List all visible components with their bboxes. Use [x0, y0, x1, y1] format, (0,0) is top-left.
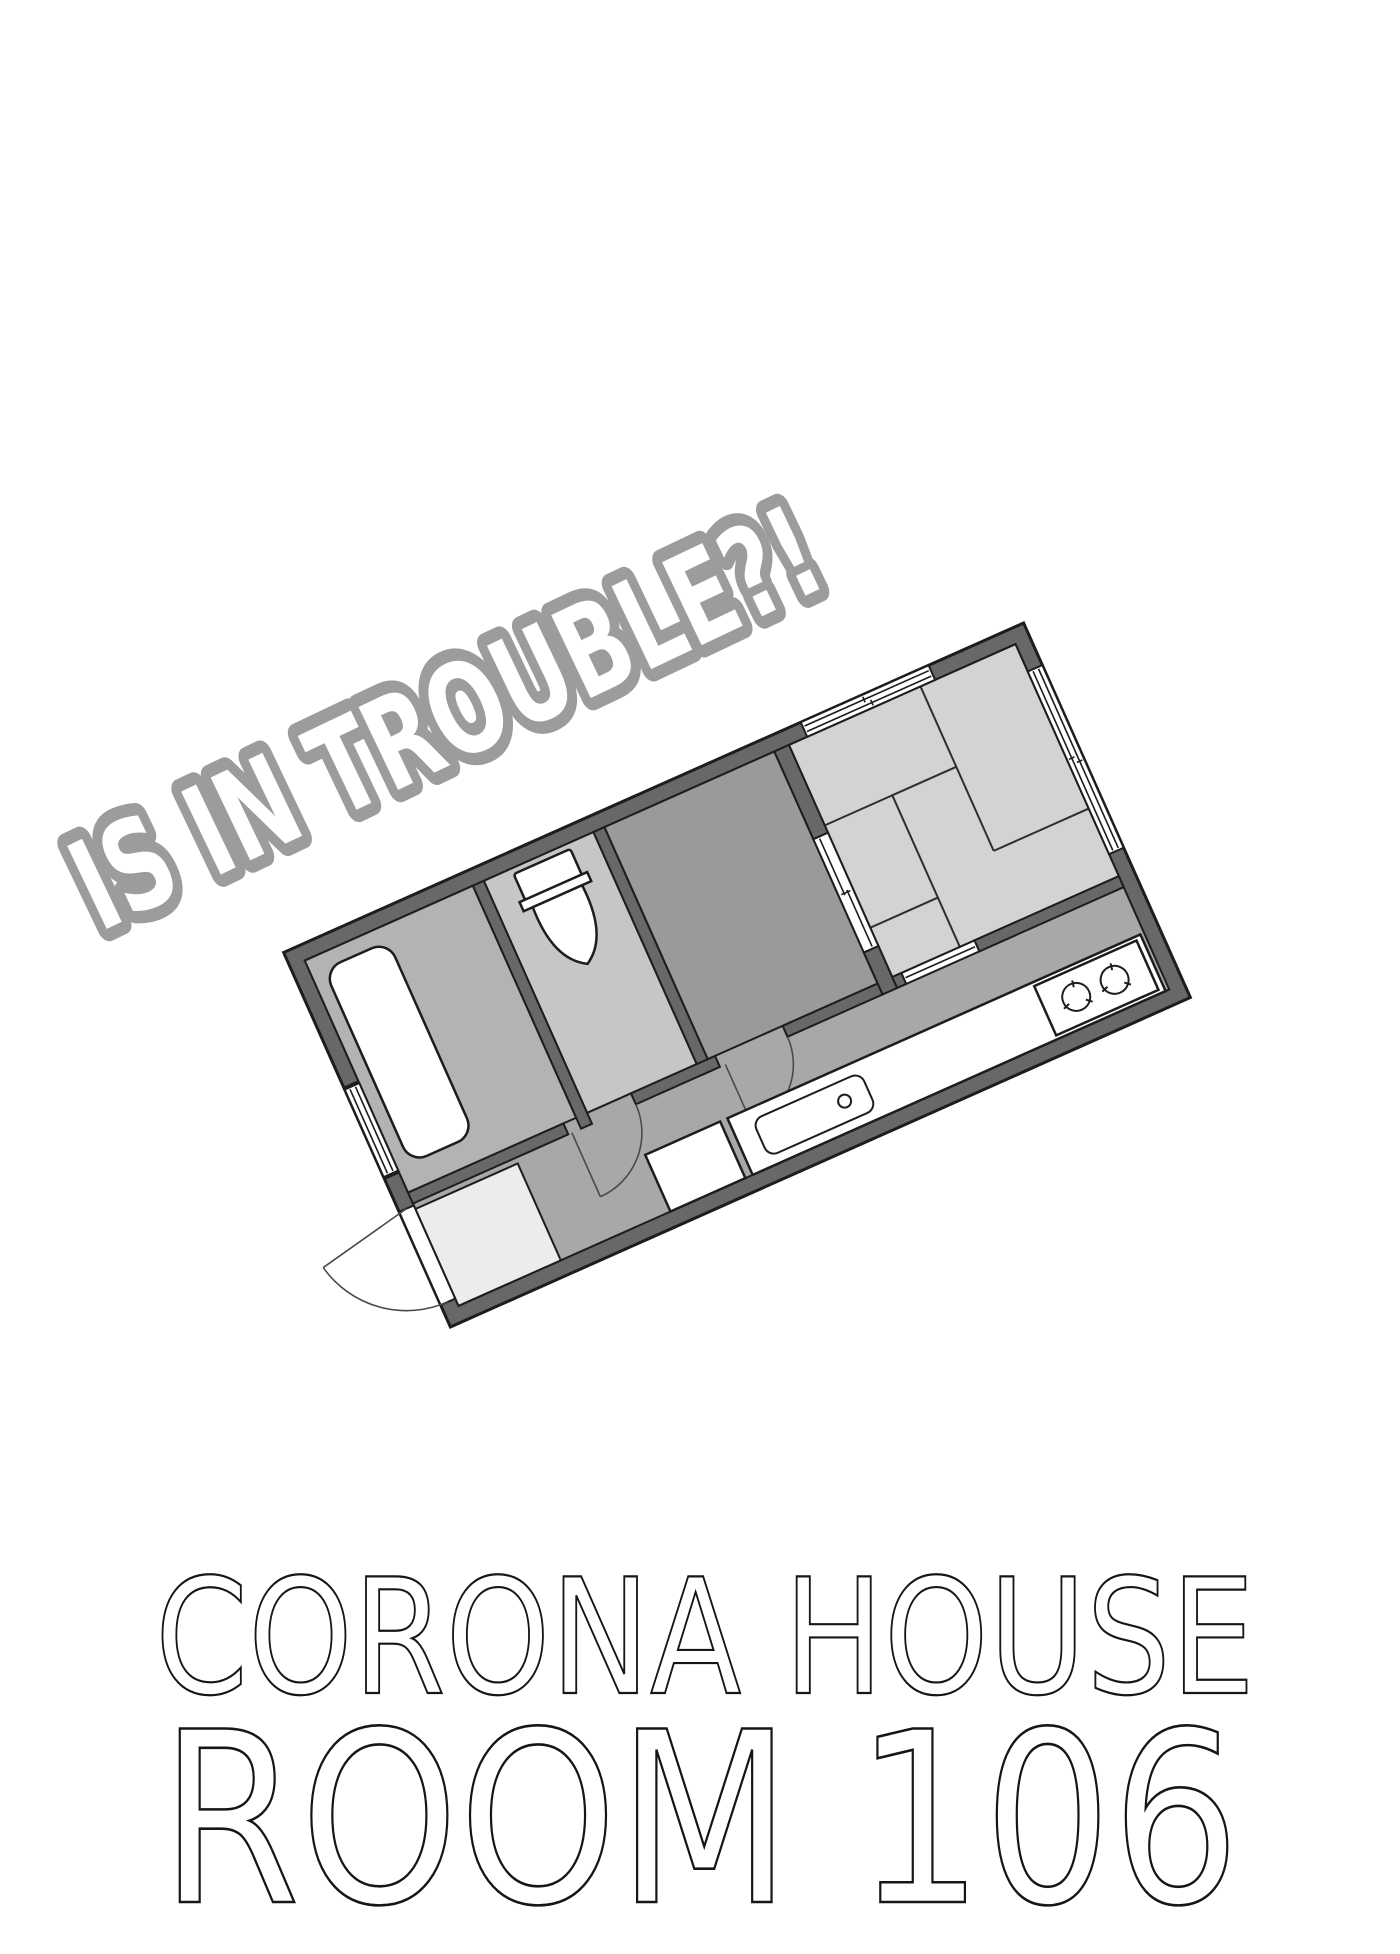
illustration-canvas: IS IN TROUBLE?! CORONA HOUSE ROOM 106 [0, 0, 1400, 1954]
room-number-text: ROOM 106 [160, 1682, 1240, 1954]
page: IS IN TROUBLE?! CORONA HOUSE ROOM 106 [0, 0, 1400, 1954]
